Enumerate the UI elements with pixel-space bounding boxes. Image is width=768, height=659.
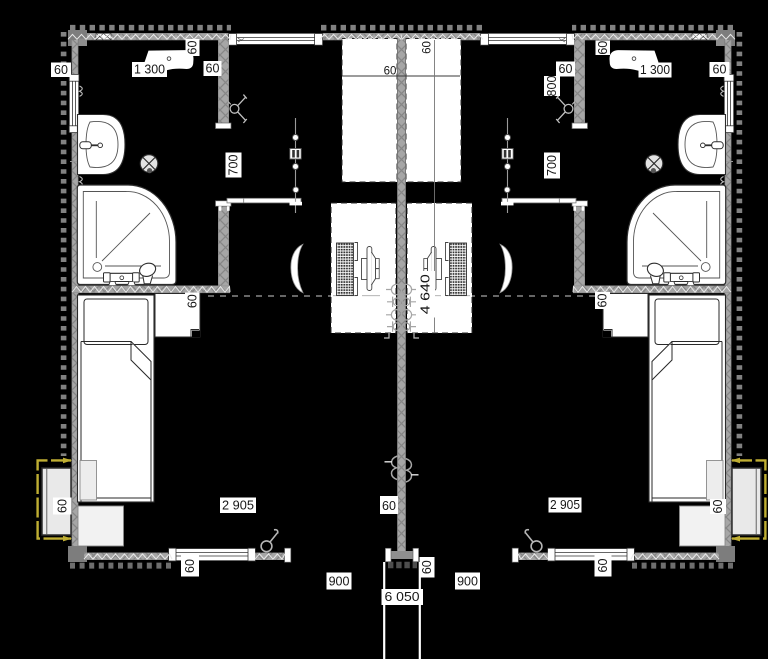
svg-text:2 905: 2 905 xyxy=(550,498,580,512)
svg-text:60: 60 xyxy=(183,559,197,573)
svg-text:2 905: 2 905 xyxy=(222,498,254,512)
svg-text:60: 60 xyxy=(559,62,573,76)
svg-text:60: 60 xyxy=(55,499,69,513)
svg-text:60: 60 xyxy=(206,62,220,76)
svg-text:60: 60 xyxy=(382,499,396,513)
svg-text:800: 800 xyxy=(545,76,559,97)
svg-text:60: 60 xyxy=(596,294,610,308)
svg-text:60: 60 xyxy=(384,66,397,78)
svg-text:6 050: 6 050 xyxy=(385,590,420,604)
svg-text:1 300: 1 300 xyxy=(134,63,165,77)
svg-text:4 640: 4 640 xyxy=(419,274,433,314)
svg-text:900: 900 xyxy=(457,574,478,588)
svg-text:60: 60 xyxy=(422,41,434,54)
svg-text:60: 60 xyxy=(711,500,725,514)
svg-text:60: 60 xyxy=(186,41,200,55)
svg-text:60: 60 xyxy=(54,63,68,77)
svg-text:60: 60 xyxy=(596,41,610,55)
svg-text:700: 700 xyxy=(545,155,559,176)
svg-text:60: 60 xyxy=(420,560,434,574)
svg-text:60: 60 xyxy=(185,294,199,308)
svg-text:1 300: 1 300 xyxy=(640,63,670,77)
svg-text:60: 60 xyxy=(713,63,727,77)
svg-text:60: 60 xyxy=(596,559,610,573)
svg-text:900: 900 xyxy=(329,574,350,588)
svg-text:700: 700 xyxy=(227,155,241,176)
